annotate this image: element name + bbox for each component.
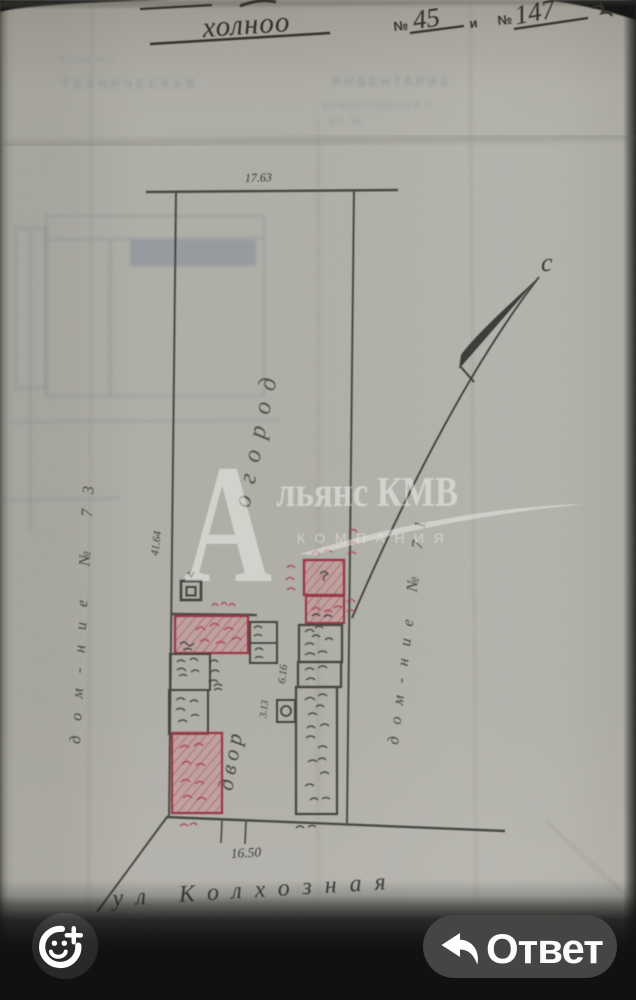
- svg-text:КОМПАНИЯ: КОМПАНИЯ: [297, 530, 453, 546]
- svg-text:льянс КМВ: льянс КМВ: [276, 470, 458, 516]
- svg-text:А: А: [184, 430, 272, 618]
